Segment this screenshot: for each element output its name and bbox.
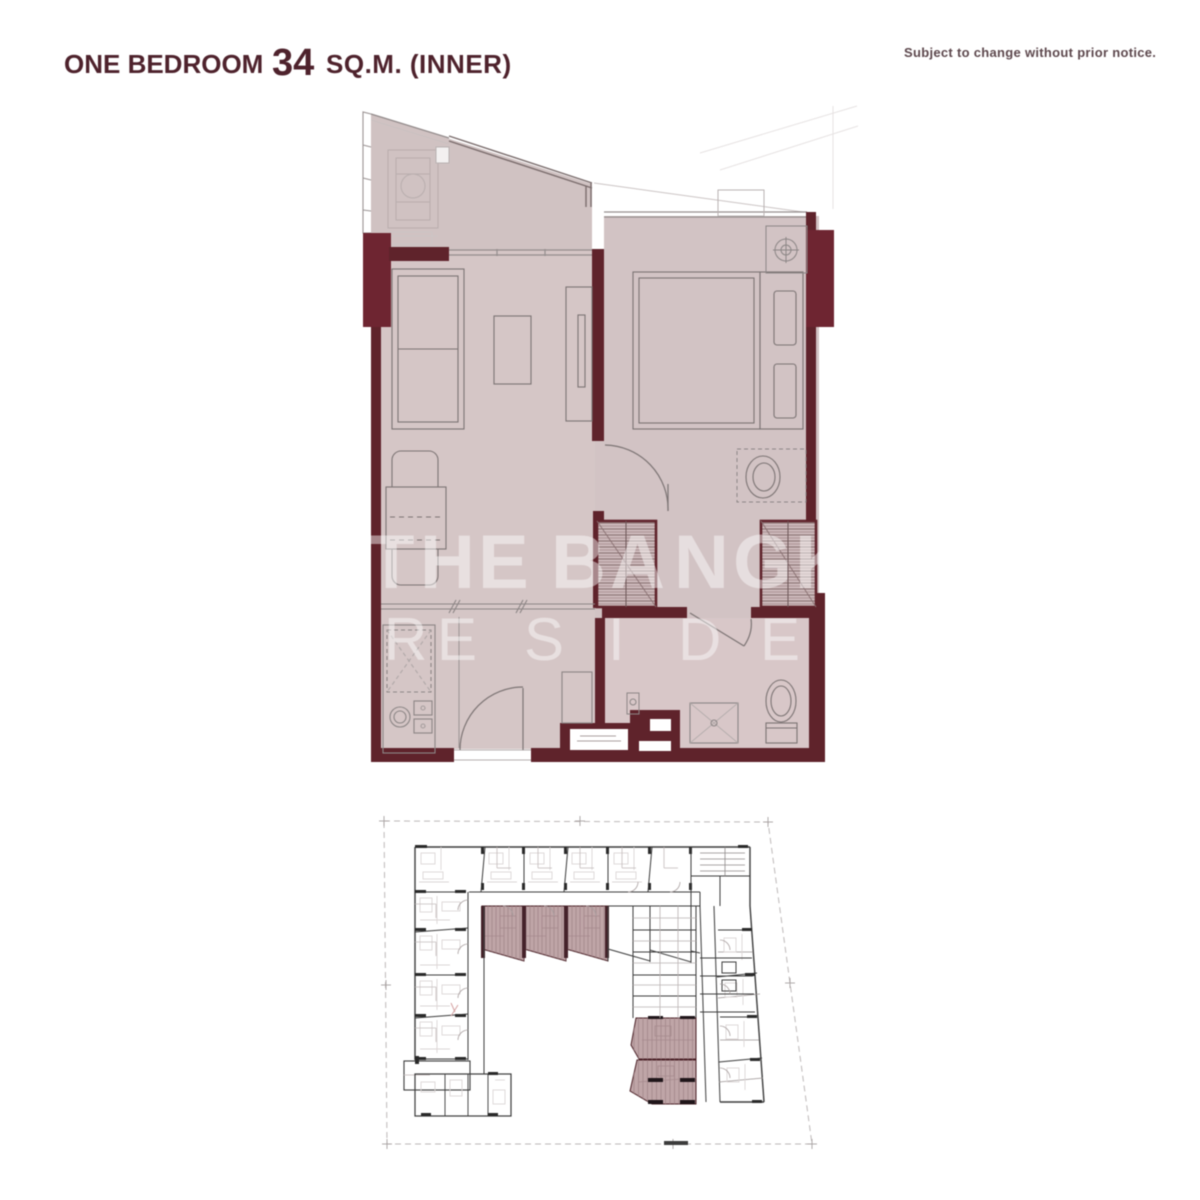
svg-text:34: 34 [272,42,314,84]
svg-text:SQ.M. (INNER): SQ.M. (INNER) [326,49,512,79]
svg-text:Subject to change without prio: Subject to change without prior notice. [904,45,1156,60]
svg-text:ONE BEDROOM: ONE BEDROOM [64,49,263,79]
